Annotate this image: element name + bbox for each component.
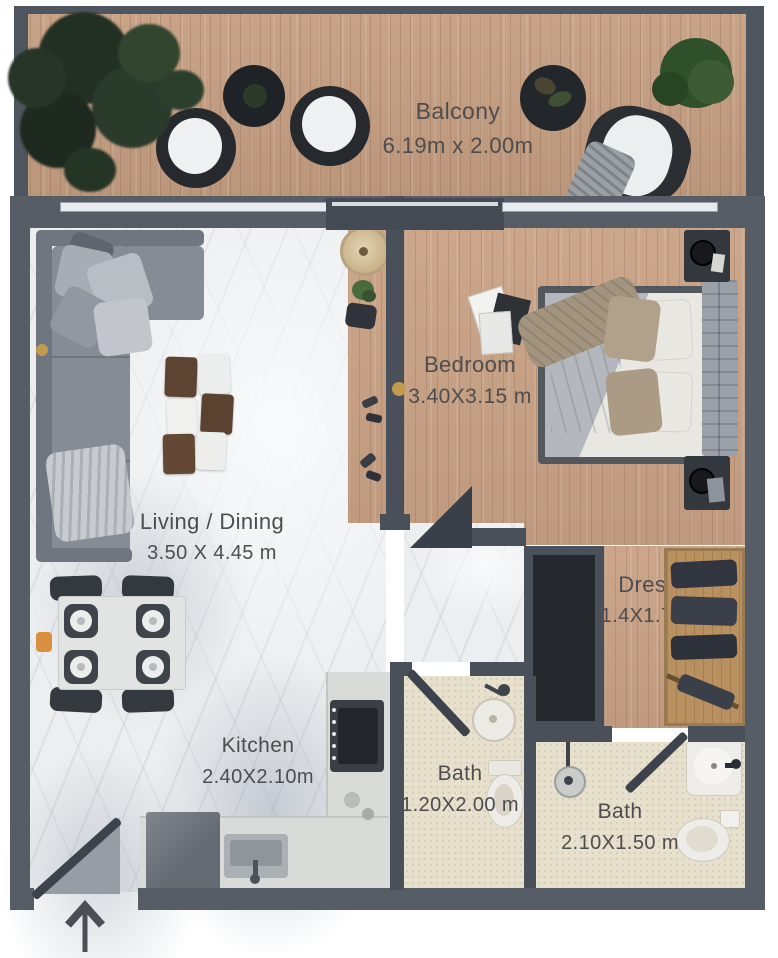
kitchen-jar [344, 792, 360, 808]
nightstand [684, 230, 730, 282]
wall-living-bedroom [386, 196, 404, 528]
wall-bedroom-south [470, 528, 526, 546]
place-setting [136, 650, 170, 684]
wall-bath1-top-b [470, 662, 524, 676]
kitchen-appliance [146, 812, 220, 890]
living-label: Living / Dining 3.50 X 4.45 m [140, 505, 284, 568]
bedroom-door-handle [392, 382, 406, 396]
living-name: Living / Dining [140, 505, 284, 538]
wall-right [745, 196, 765, 910]
wardrobe-clothes [670, 559, 737, 588]
wall-left [10, 196, 30, 910]
floor-lamp [340, 226, 390, 276]
bed-pillow-tan [605, 367, 663, 436]
bath2-sink [686, 738, 742, 796]
kitchen-name: Kitchen [202, 730, 314, 762]
service-shaft [524, 546, 604, 730]
place-setting [64, 604, 98, 638]
balcony-dims: 6.19m x 2.00m [383, 129, 534, 162]
wall-bottom [138, 888, 765, 910]
wall-bottom-left-stub [10, 888, 34, 910]
wardrobe-clothes [671, 634, 738, 660]
dining-chair [49, 687, 102, 714]
living-window [60, 202, 328, 212]
north-arrow-icon [50, 898, 120, 956]
place-setting [136, 604, 170, 638]
bed-pillow-tan [602, 295, 661, 363]
wall-cap [380, 514, 410, 530]
bed-headboard [702, 280, 738, 456]
bedroom-name: Bedroom [408, 348, 531, 381]
sofa-blanket [44, 443, 136, 543]
wardrobe-clothes [676, 673, 737, 711]
wall-dress-bath2-a [524, 726, 612, 742]
bath2-dims: 2.10X1.50 m [561, 828, 679, 858]
kitchen-jar [362, 808, 374, 820]
balcony-name: Balcony [383, 94, 534, 129]
bath1-dims: 1.20X2.00 m [401, 790, 519, 820]
dining-chair [122, 687, 175, 713]
bath1-basin [472, 698, 516, 742]
living-dims: 3.50 X 4.45 m [140, 538, 284, 568]
wall-handle-gold [36, 344, 48, 356]
candle [36, 632, 52, 652]
bath2-name: Bath [561, 796, 679, 828]
balcony-rail-right [746, 6, 764, 198]
wardrobe [664, 548, 745, 726]
bath2-label: Bath 2.10X1.50 m [561, 796, 679, 858]
basket [344, 302, 377, 330]
bath1-name: Bath [401, 758, 519, 790]
cooktop [330, 700, 384, 772]
place-setting [64, 650, 98, 684]
kitchen-label: Kitchen 2.40X2.10m [202, 730, 314, 792]
bedroom-window [502, 202, 718, 212]
bedroom-label: Bedroom 3.40X3.15 m [408, 348, 531, 413]
bath1-label: Bath 1.20X2.00 m [401, 758, 519, 820]
wardrobe-clothes [671, 596, 738, 626]
balcony-door-wall [326, 198, 504, 230]
wall-bath1-bath2 [524, 676, 536, 888]
bedroom-dims: 3.40X3.15 m [408, 381, 531, 413]
floor-plan: Balcony 6.19m x 2.00m [0, 0, 778, 958]
wall-dress-bath2-b [688, 726, 745, 742]
kitchen-sink [224, 834, 288, 878]
balcony-rail-top [14, 6, 750, 14]
balcony-label: Balcony 6.19m x 2.00m [383, 94, 534, 162]
kitchen-dims: 2.40X2.10m [202, 762, 314, 792]
balcony-door-glass [332, 202, 498, 206]
nightstand [684, 456, 730, 510]
